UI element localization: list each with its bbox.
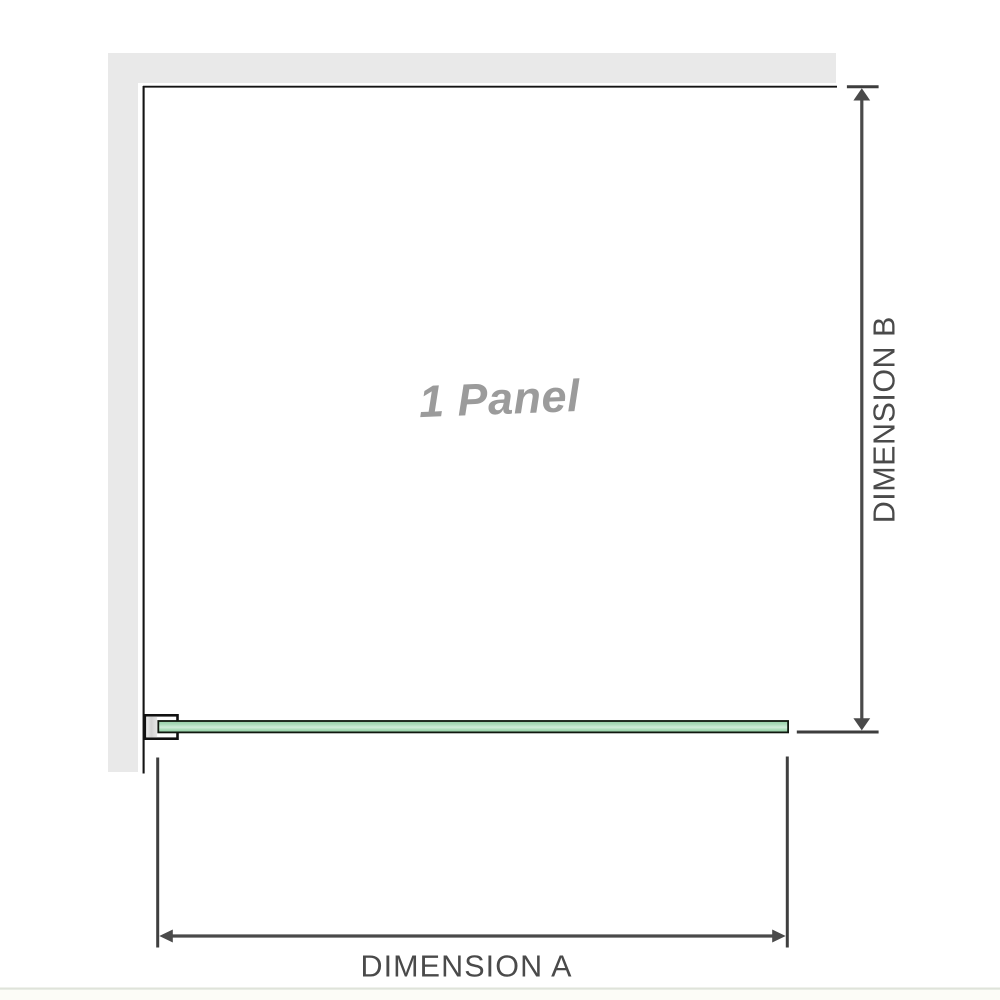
svg-text:DIMENSION A: DIMENSION A	[360, 950, 572, 984]
svg-text:1 Panel: 1 Panel	[418, 370, 582, 427]
svg-text:DIMENSION B: DIMENSION B	[867, 316, 901, 523]
